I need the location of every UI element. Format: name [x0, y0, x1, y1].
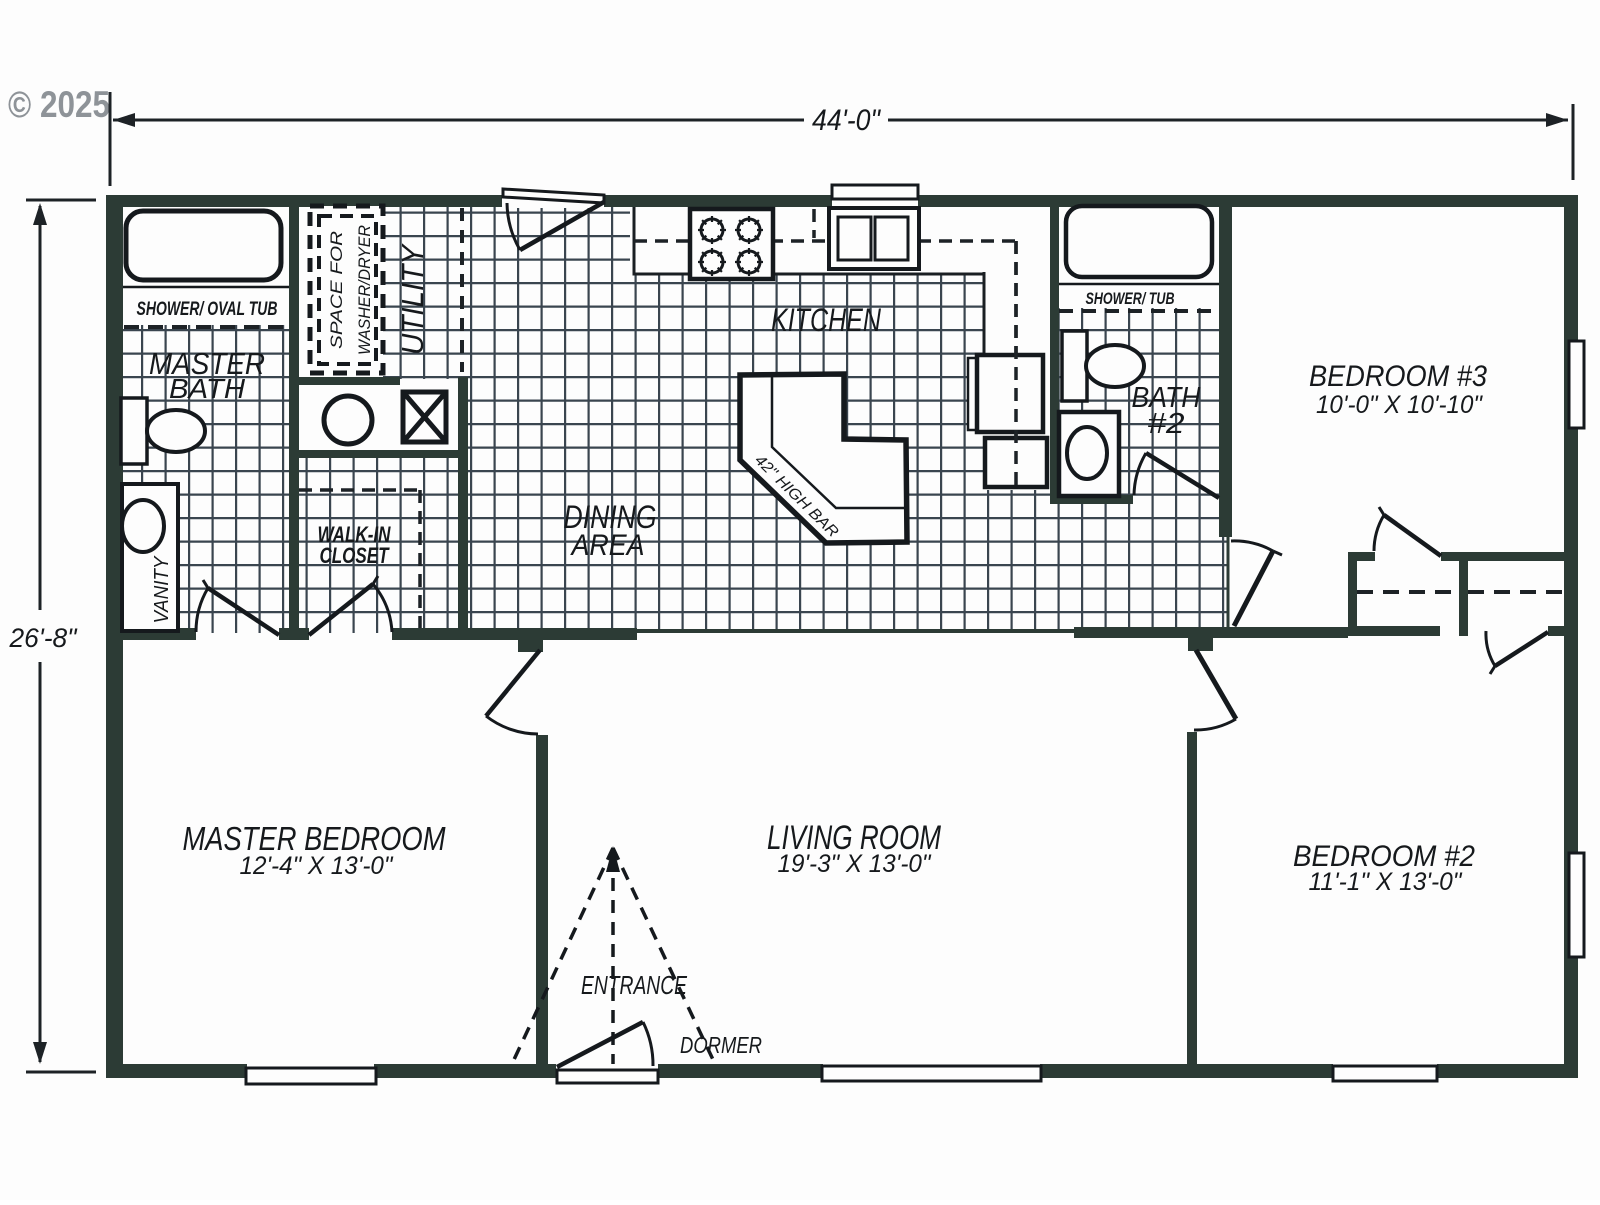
svg-text:11'-1" X 13'-0": 11'-1" X 13'-0": [1309, 868, 1463, 896]
svg-text:BEDROOM #3: BEDROOM #3: [1309, 360, 1487, 393]
svg-text:19'-3" X 13'-0": 19'-3" X 13'-0": [778, 850, 932, 878]
svg-text:12'-4" X 13'-0": 12'-4" X 13'-0": [240, 852, 394, 880]
svg-text:10'-0" X 10'-10": 10'-0" X 10'-10": [1316, 391, 1483, 419]
svg-text:CLOSET: CLOSET: [320, 543, 390, 568]
svg-text:DORMER: DORMER: [680, 1032, 762, 1058]
svg-text:SPACE FOR: SPACE FOR: [327, 231, 346, 349]
svg-text:SHOWER/ TUB: SHOWER/ TUB: [1086, 289, 1175, 308]
svg-text:ENTRANCE: ENTRANCE: [581, 970, 687, 1000]
svg-text:KITCHEN: KITCHEN: [771, 302, 882, 338]
svg-text:BATH: BATH: [169, 373, 246, 404]
svg-text:WASHER/DRYER: WASHER/DRYER: [355, 225, 374, 355]
svg-text:© 2025: © 2025: [8, 84, 110, 125]
svg-text:VANITY: VANITY: [151, 555, 173, 624]
svg-text:44'-0": 44'-0": [812, 104, 881, 137]
svg-text:AREA: AREA: [570, 529, 645, 562]
svg-text:#2: #2: [1148, 408, 1185, 440]
svg-text:UTILITY: UTILITY: [395, 243, 430, 355]
svg-text:SHOWER/ OVAL TUB: SHOWER/ OVAL TUB: [137, 299, 278, 320]
svg-text:26'-8": 26'-8": [9, 623, 78, 653]
